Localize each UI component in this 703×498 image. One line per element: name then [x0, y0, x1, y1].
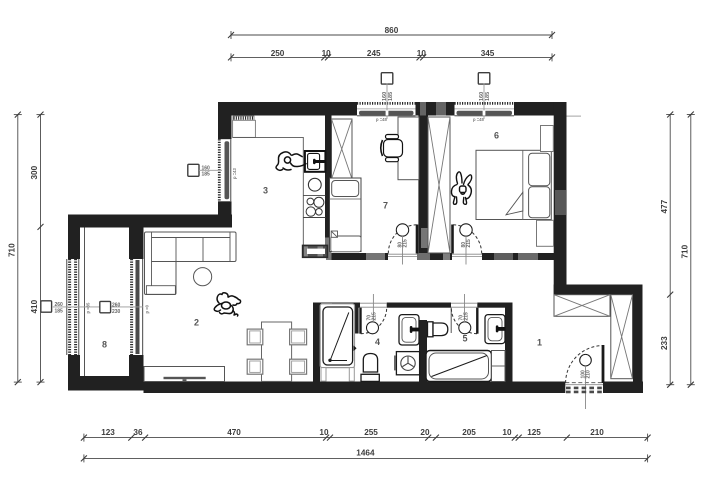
- svg-text:860: 860: [385, 26, 399, 35]
- svg-text:10: 10: [322, 49, 332, 58]
- svg-text:185: 185: [485, 92, 491, 101]
- svg-text:p =0: p =0: [145, 304, 150, 313]
- svg-text:233: 233: [660, 336, 669, 350]
- svg-text:260: 260: [55, 302, 64, 308]
- svg-text:215: 215: [466, 239, 472, 248]
- svg-text:p =85: p =85: [86, 302, 91, 313]
- svg-text:2: 2: [194, 318, 199, 328]
- svg-text:7: 7: [383, 201, 388, 211]
- svg-text:260: 260: [112, 303, 121, 309]
- svg-text:123: 123: [101, 428, 115, 437]
- svg-text:6: 6: [494, 131, 499, 141]
- svg-text:p =45: p =45: [473, 117, 484, 122]
- svg-text:300: 300: [30, 165, 39, 179]
- svg-text:125: 125: [527, 428, 541, 437]
- svg-text:345: 345: [481, 49, 495, 58]
- svg-text:470: 470: [227, 428, 241, 437]
- svg-text:210: 210: [590, 428, 604, 437]
- svg-text:255: 255: [364, 428, 378, 437]
- svg-text:710: 710: [8, 243, 17, 257]
- svg-text:410: 410: [30, 299, 39, 313]
- svg-text:20: 20: [420, 428, 430, 437]
- svg-text:205: 205: [462, 428, 476, 437]
- svg-text:1: 1: [537, 338, 542, 348]
- svg-text:185: 185: [388, 92, 394, 101]
- svg-text:1464: 1464: [356, 448, 375, 457]
- svg-text:10: 10: [417, 49, 427, 58]
- svg-text:10: 10: [319, 428, 329, 437]
- svg-text:3: 3: [263, 186, 268, 196]
- svg-text:215: 215: [464, 312, 470, 321]
- svg-text:185: 185: [55, 308, 64, 314]
- svg-text:10: 10: [502, 428, 512, 437]
- svg-text:8: 8: [102, 340, 107, 350]
- svg-text:4: 4: [375, 337, 380, 347]
- svg-text:215: 215: [372, 312, 378, 321]
- svg-text:p =45: p =45: [376, 117, 387, 122]
- svg-text:215: 215: [403, 239, 409, 248]
- svg-text:245: 245: [367, 49, 381, 58]
- svg-text:5: 5: [463, 334, 468, 344]
- svg-text:36: 36: [133, 428, 143, 437]
- svg-text:210: 210: [586, 370, 592, 379]
- svg-text:710: 710: [681, 244, 690, 258]
- svg-text:250: 250: [271, 49, 285, 58]
- svg-text:230: 230: [112, 309, 121, 315]
- svg-text:185: 185: [202, 172, 211, 178]
- svg-text:p =43: p =43: [232, 168, 237, 179]
- svg-text:477: 477: [660, 199, 669, 213]
- svg-text:160: 160: [202, 165, 211, 171]
